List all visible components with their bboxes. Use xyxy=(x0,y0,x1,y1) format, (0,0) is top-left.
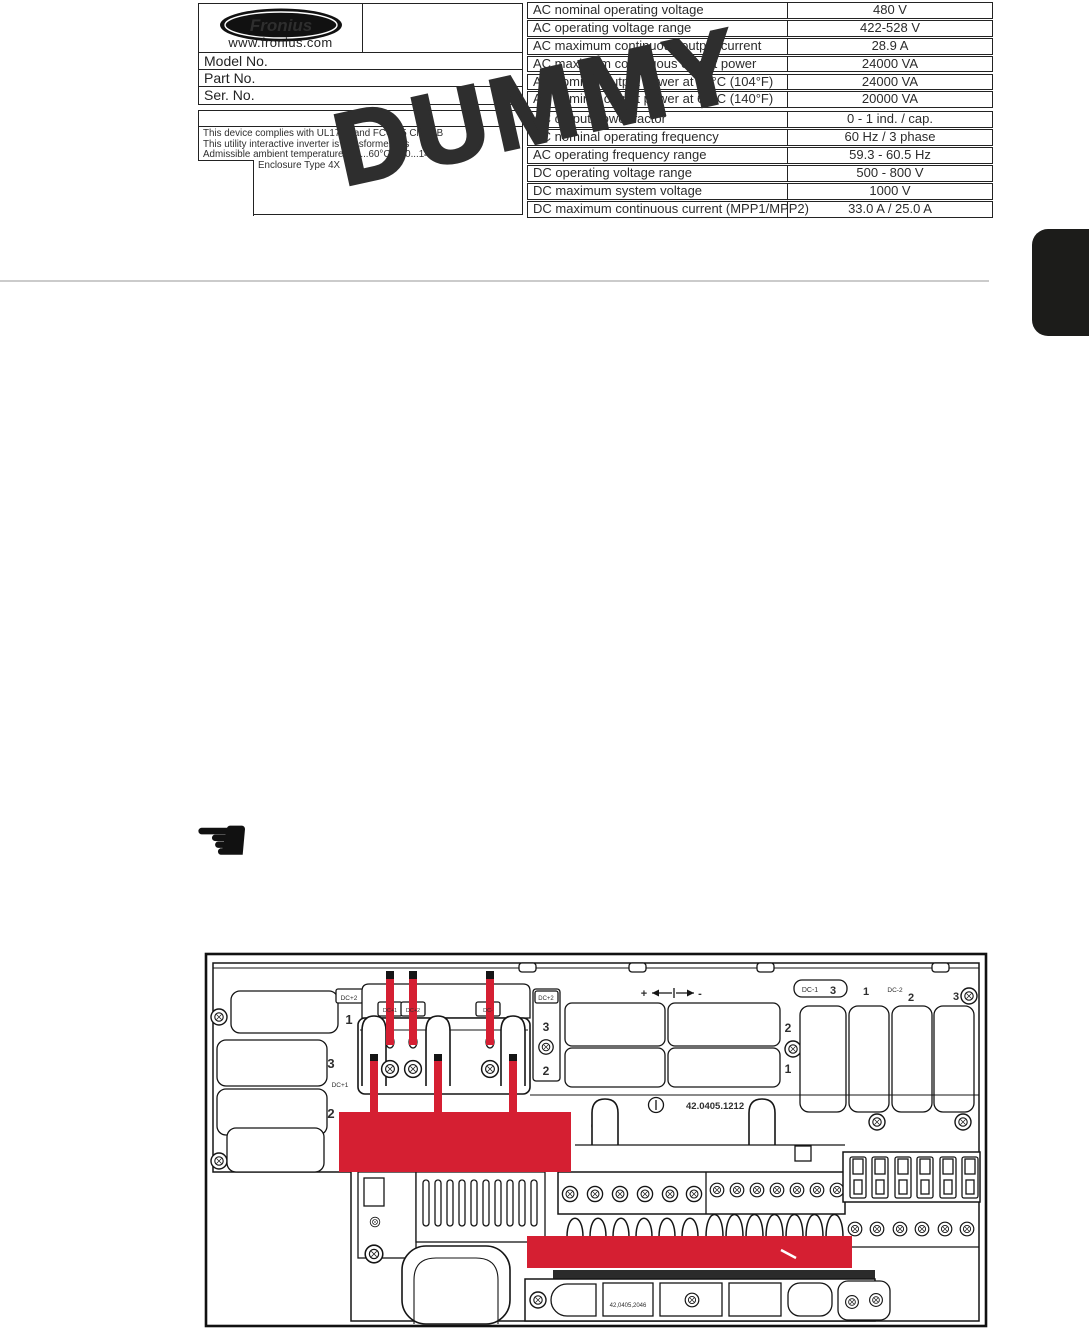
terminal-screw-icon xyxy=(790,1183,804,1197)
chapter-tab xyxy=(1032,229,1089,336)
fronius-logo-text: Fronius xyxy=(250,16,312,35)
section-divider xyxy=(0,280,989,282)
label-side-dc2: DC+2 xyxy=(538,996,554,1002)
terminal-screw-icon xyxy=(405,1061,422,1078)
label-right-3b: 3 xyxy=(953,991,959,1003)
screw-icon xyxy=(869,1114,885,1130)
label-side-2: 2 xyxy=(543,1064,550,1078)
screw-icon xyxy=(211,1009,227,1025)
terminal-screw-icon xyxy=(587,1186,602,1201)
label-right-3a: 3 xyxy=(830,985,836,997)
terminal-screw-icon xyxy=(893,1222,907,1236)
manual-page: Fronius www.fronius.com Model No. Part N… xyxy=(0,0,1089,1330)
screw-icon xyxy=(539,1040,553,1054)
terminal-screw-icon xyxy=(662,1186,677,1201)
terminal-tab-label: DC+1 xyxy=(383,1008,397,1014)
screw-icon xyxy=(870,1294,883,1307)
screw-icon xyxy=(211,1153,227,1169)
knockout-cover xyxy=(227,1128,324,1172)
knockout-cover xyxy=(800,1006,846,1112)
knockout-cover xyxy=(231,991,338,1033)
terminal-screw-icon xyxy=(637,1186,652,1201)
highlight-box-ac xyxy=(527,1236,852,1268)
terminal-screw-icon xyxy=(810,1183,824,1197)
label-dc2: DC+2 xyxy=(341,995,358,1002)
terminal-screw-icon xyxy=(960,1222,974,1236)
polarity-plus: + xyxy=(641,988,647,1000)
terminal-screw-icon xyxy=(562,1186,577,1201)
label-dc-1: DC-1 xyxy=(802,987,818,994)
highlight-box-dc xyxy=(339,1112,571,1172)
label-2: 2 xyxy=(327,1106,334,1121)
polarity-minus: - xyxy=(698,988,702,1000)
label-center-2: 2 xyxy=(785,1021,792,1035)
terminal-screw-icon xyxy=(750,1183,764,1197)
terminal-screw-icon xyxy=(482,1061,499,1078)
screw-icon xyxy=(370,1217,380,1227)
terminal-screw-icon xyxy=(770,1183,784,1197)
knockout-cover xyxy=(565,1048,665,1087)
label-right-2: 2 xyxy=(908,992,914,1004)
label-side-3: 3 xyxy=(543,1020,550,1034)
cable-clamp xyxy=(592,1099,618,1145)
knockout-cover xyxy=(892,1006,932,1112)
label-center-1: 1 xyxy=(785,1062,792,1076)
terminal-screw-icon xyxy=(938,1222,952,1236)
terminal-screw-icon xyxy=(830,1183,844,1197)
screw-icon xyxy=(955,1114,971,1130)
screw-icon xyxy=(530,1292,546,1308)
screw-icon xyxy=(365,1245,383,1263)
connection-area-diagram: DC+2 1 3 DC+1 2 DC+1 DC+2 DC- DC+2 3 2 +… xyxy=(204,952,989,1329)
screw-icon xyxy=(961,988,977,1004)
compliance-box-notch xyxy=(198,160,254,216)
pointing-hand-icon: ☚ xyxy=(193,808,250,872)
knockout-cover xyxy=(668,1003,780,1046)
terminal-screw-icon xyxy=(710,1183,724,1197)
terminal-tab-label: DC- xyxy=(483,1008,493,1014)
terminal-screw-icon xyxy=(612,1186,627,1201)
label-3: 3 xyxy=(327,1056,334,1071)
part-number-bottom: 42,0405,2046 xyxy=(610,1303,647,1309)
cable-clamp xyxy=(749,1099,775,1145)
terminal-tab-label: DC+2 xyxy=(406,1008,420,1014)
screw-icon xyxy=(846,1296,859,1309)
terminal-screw-icon xyxy=(848,1222,862,1236)
screw-icon xyxy=(685,1293,699,1307)
knockout-cover xyxy=(217,1040,327,1086)
terminal-screw-icon xyxy=(915,1222,929,1236)
terminal-screw-icon xyxy=(382,1061,399,1078)
label-dc-2: DC-2 xyxy=(887,987,903,994)
terminal-screw-icon xyxy=(870,1222,884,1236)
dummy-watermark: DUMMY xyxy=(330,8,890,238)
knockout-cover xyxy=(565,1003,665,1046)
knockout-cover xyxy=(668,1048,780,1087)
label-right-1: 1 xyxy=(863,986,869,998)
knockout-cover xyxy=(934,1006,974,1112)
terminal-screw-icon xyxy=(730,1183,744,1197)
gland-plate xyxy=(525,1270,890,1321)
dummy-watermark-text: DUMMY xyxy=(330,8,753,207)
part-number-top: 42.0405.1212 xyxy=(686,1101,744,1112)
label-dc1: DC+1 xyxy=(332,1082,349,1089)
terminal-screw-icon xyxy=(686,1186,701,1201)
knockout-cover xyxy=(849,1006,889,1112)
screw-icon xyxy=(785,1041,801,1057)
label-1: 1 xyxy=(345,1012,352,1027)
